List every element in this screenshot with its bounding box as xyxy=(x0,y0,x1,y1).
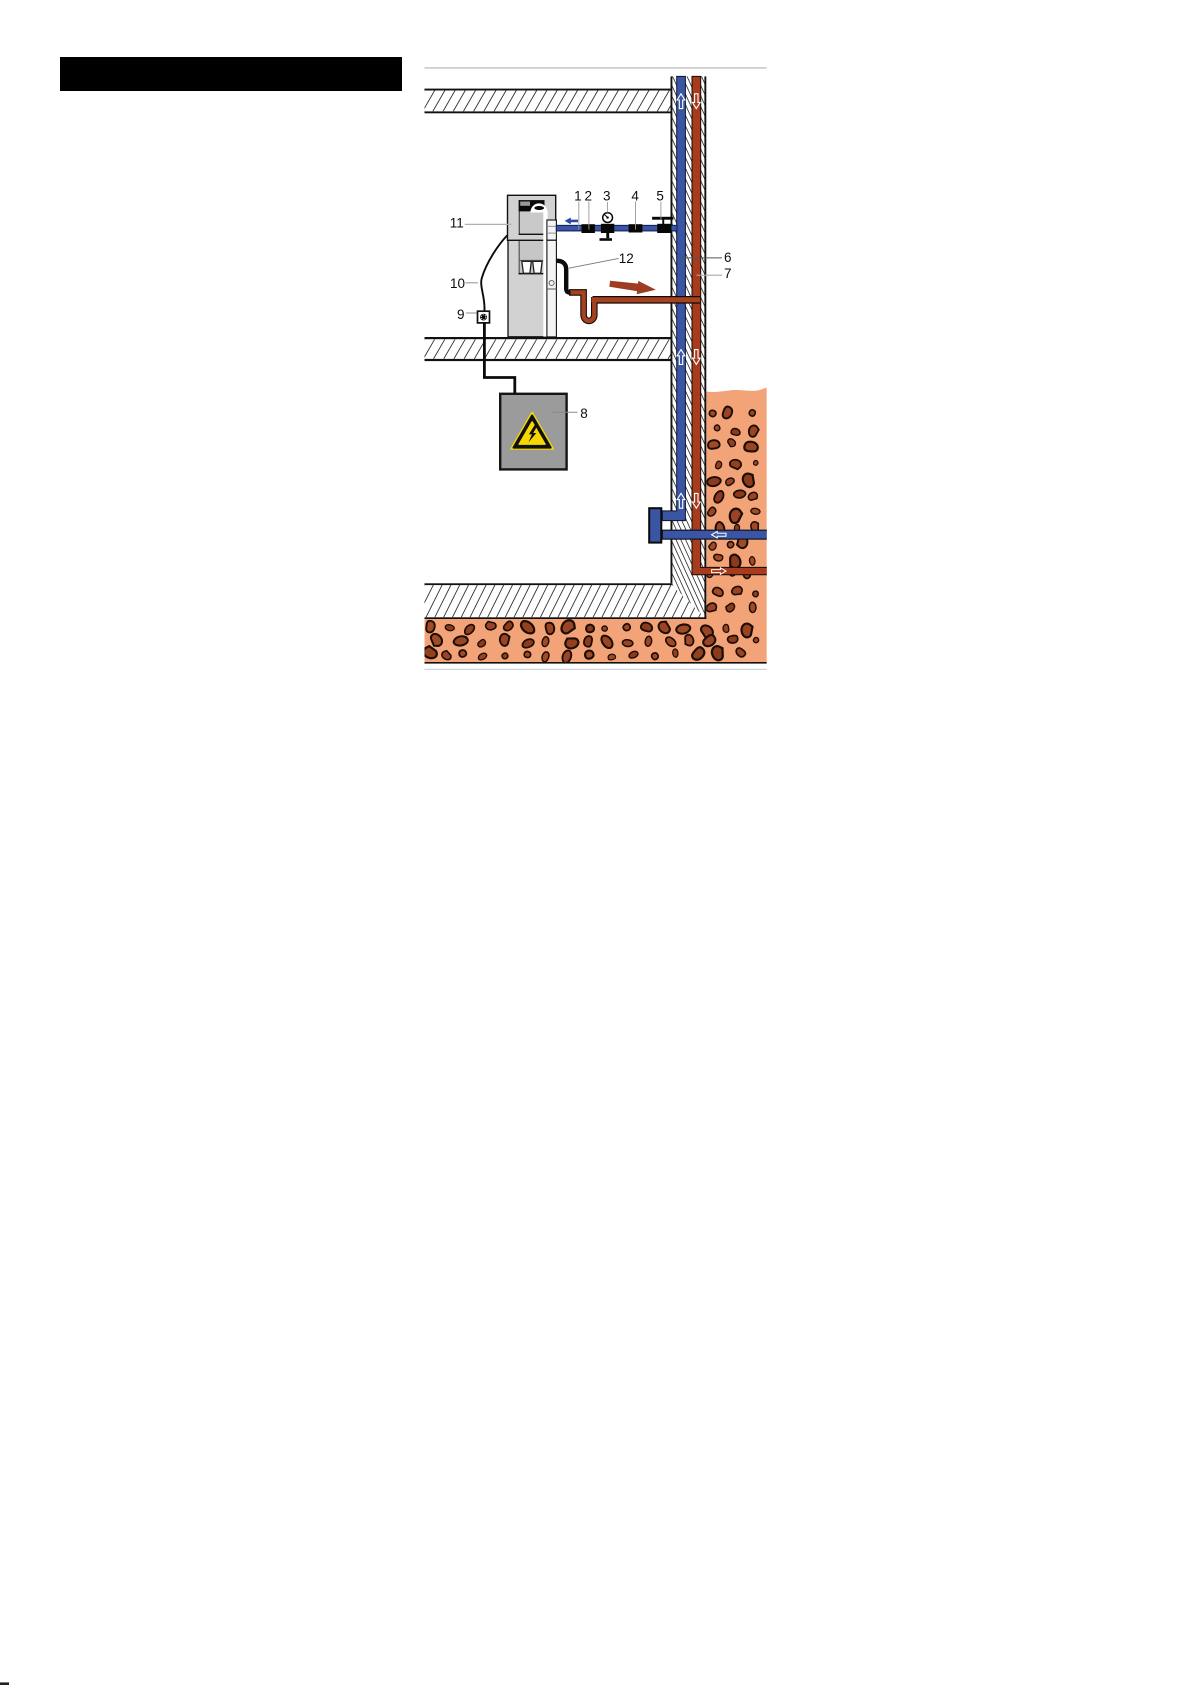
svg-text:12: 12 xyxy=(619,251,634,266)
svg-text:8: 8 xyxy=(580,406,588,421)
svg-text:10: 10 xyxy=(450,276,465,291)
svg-text:6: 6 xyxy=(724,250,732,265)
svg-text:9: 9 xyxy=(457,307,465,322)
svg-text:1: 1 xyxy=(574,188,582,203)
svg-text:5: 5 xyxy=(656,188,664,203)
svg-text:2: 2 xyxy=(585,188,593,203)
svg-text:3: 3 xyxy=(603,188,611,203)
svg-text:4: 4 xyxy=(631,188,639,203)
svg-text:7: 7 xyxy=(724,266,732,281)
svg-text:11: 11 xyxy=(450,216,464,231)
